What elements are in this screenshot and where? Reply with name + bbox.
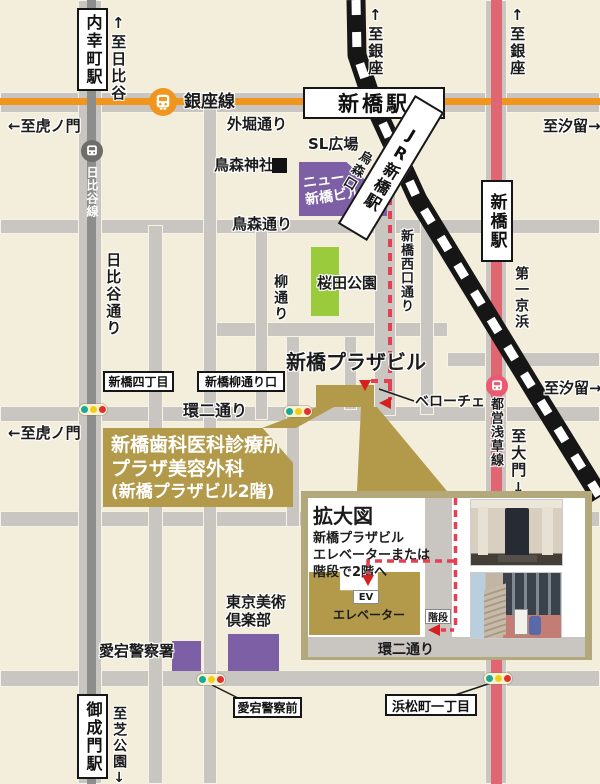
hibiya-line-train-icon	[81, 140, 103, 162]
direction-to-daimon: 至大門↓	[509, 428, 526, 499]
asakusa-line-label: 都営浅草線	[487, 397, 502, 467]
access-map: ニュー 新橋ビル 新橋歯科医科診療所 プラザ美容外科 (新橋プラザビル2階)	[0, 0, 600, 784]
direction-to-shibakoen: 至芝公園↓	[111, 706, 127, 784]
direction-to-ginza-west: ↑至銀座	[366, 6, 383, 77]
landmark-tokyo-art-club: 東京美術 倶楽部	[226, 593, 286, 629]
direction-to-shiodome-mid: 至汐留→	[544, 380, 600, 397]
road-label-nishiguchi-dori: 新橋西口通り	[397, 229, 412, 313]
shrine-marker-icon	[272, 158, 287, 173]
intersection-atago-police-front: 愛宕警察前	[233, 697, 302, 718]
direction-to-shiodome-top: 至汐留→	[543, 118, 600, 135]
ginza-line-train-icon	[149, 88, 177, 116]
traffic-light-icon	[79, 404, 107, 415]
callout-wedge-right	[357, 407, 447, 491]
route-arrow-down-icon	[359, 380, 371, 391]
intersection-yanagidori-guchi: 新橋柳通り口	[197, 371, 285, 392]
road-label-sotobori: 外堀通り	[227, 116, 287, 133]
landmark-karasumori-shrine: 鳥森神社	[214, 157, 274, 174]
direction-to-ginza-east: ↑至銀座	[508, 6, 525, 77]
enlarged-view-inset: 拡大図 新橋プラザビル エレベーターまたは 階段で2階へ EV エレベーター 階…	[301, 491, 592, 660]
inset-arrow-left-icon	[428, 624, 440, 636]
asakusa-line-train-icon	[486, 375, 508, 397]
traffic-light-icon	[484, 673, 512, 684]
landmark-plaza-building: 新橋プラザビル	[286, 351, 426, 374]
landmark-sl-plaza: SL広場	[308, 136, 358, 153]
road-label-hibiya-dori: 日比谷通り	[104, 252, 121, 337]
road-label-daiichi-keihin: 第一京浜	[513, 266, 529, 330]
ginza-line-label: 銀座線	[184, 93, 235, 113]
map-overlay-graphics	[0, 0, 600, 784]
hibiya-line-label: 日比谷線	[84, 166, 101, 218]
inset-arrow-down-icon	[362, 575, 374, 586]
road-label-karasumori-dori: 鳥森通り	[232, 216, 292, 233]
station-shimbashi-east: 新橋駅	[481, 180, 513, 262]
traffic-light-icon	[284, 406, 312, 417]
intersection-shimbashi-4chome: 新橋四丁目	[103, 371, 174, 392]
traffic-light-icon	[197, 674, 225, 685]
road-label-kanni-dori: 環二通り	[183, 402, 247, 420]
intersection-hamamatsucho-1chome: 浜松町一丁目	[385, 694, 477, 716]
route-arrow-left-icon	[379, 397, 391, 409]
landmark-sakurada-park: 桜田公園	[317, 275, 377, 292]
inset-route-graphics	[308, 498, 585, 653]
landmark-veloce: ベローチェ	[415, 394, 485, 410]
station-uchisaiwaicho: 内幸町駅	[77, 8, 108, 91]
station-onarimon: 御成門駅	[77, 694, 108, 779]
direction-to-hibiya: ↑至日比谷	[109, 14, 126, 102]
road-label-yanagi-dori: 柳通り	[272, 274, 288, 322]
jr-railway-line	[356, 0, 600, 497]
direction-to-toranomon-mid: ←至虎ノ門	[8, 425, 81, 442]
direction-to-toranomon-top: ←至虎ノ門	[8, 118, 81, 135]
landmark-atago-police: 愛宕警察署	[99, 643, 174, 660]
veloce-pointer-line	[379, 389, 414, 401]
